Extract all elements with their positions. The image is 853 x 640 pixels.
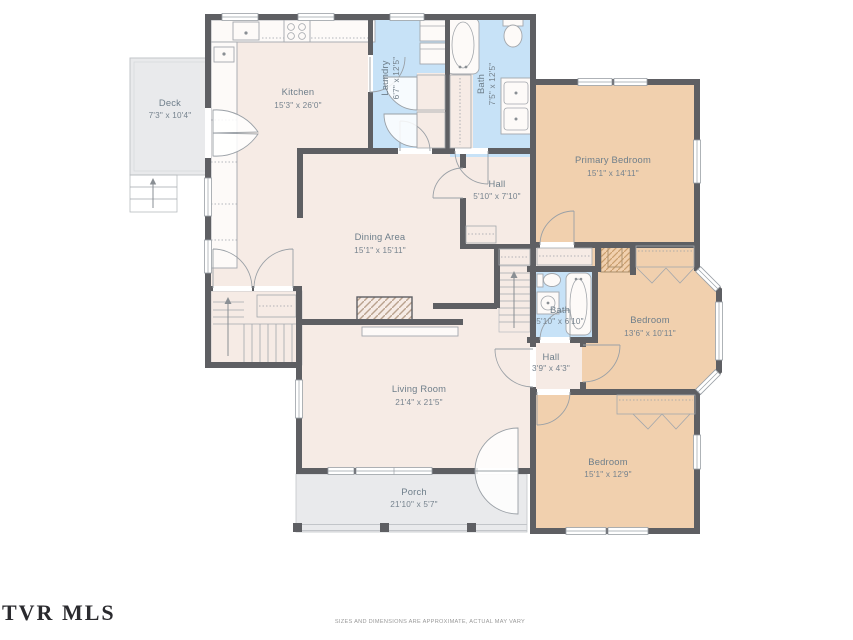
bedroom-middle-dims: 13'6" x 10'11" (624, 329, 676, 338)
disclaimer-text: SIZES AND DIMENSIONS ARE APPROXIMATE, AC… (335, 619, 525, 625)
bath-lower-name: Bath (550, 304, 570, 315)
hall-upper-dims: 5'10" x 7'10" (473, 192, 521, 201)
kitchen-sink-drain (244, 31, 247, 34)
window (390, 14, 424, 21)
deck-dims: 7'3" x 10'4" (149, 111, 192, 120)
bedroom-bottom-dims: 15'1" x 12'9" (584, 470, 632, 479)
bath-lower-dims: 5'10" x 6'10" (536, 317, 584, 326)
window (614, 79, 647, 86)
window (356, 468, 432, 475)
tub-faucet (465, 66, 468, 69)
porch-dims: 21'10" x 5'7" (390, 500, 438, 509)
fireplace-box (357, 297, 412, 322)
prep-sink-drain (222, 52, 225, 55)
toilet-tank (537, 274, 543, 287)
window (328, 468, 354, 475)
porch-post (467, 523, 476, 532)
living-dims: 21'4" x 21'5" (395, 398, 443, 407)
deck-stairs (130, 175, 177, 212)
bath-upper-name: Bath (475, 74, 486, 94)
stove (284, 20, 310, 42)
tub-faucet (459, 66, 462, 69)
primary-bedroom-dims: 15'1" x 14'11" (587, 169, 639, 178)
window (222, 14, 258, 21)
toilet-bowl (504, 25, 522, 47)
floor-plan-drawing: Deck 7'3" x 10'4" Kitchen 15'3" x 26'0" … (0, 0, 853, 640)
tub-faucet (575, 278, 578, 281)
bedroom-middle-name: Bedroom (630, 314, 669, 325)
mls-logo: TVR MLS (2, 600, 116, 625)
porch-post (380, 523, 389, 532)
hearth (362, 327, 458, 336)
kitchen-dims: 15'3" x 26'0" (274, 101, 322, 110)
tub-faucet (580, 278, 583, 281)
window (608, 528, 648, 535)
floor-plan-canvas: Deck 7'3" x 10'4" Kitchen 15'3" x 26'0" … (0, 0, 853, 640)
dining-name: Dining Area (355, 231, 406, 242)
hall-upper-name: Hall (489, 178, 506, 189)
primary-bedroom-name: Primary Bedroom (575, 154, 651, 165)
window (694, 435, 701, 469)
bath-upper-dims: 7'5" x 12'5" (488, 63, 497, 106)
kitchen-name: Kitchen (282, 86, 315, 97)
dryer (420, 43, 446, 64)
window (205, 240, 212, 273)
primary-closet-floor (536, 248, 592, 266)
deck-name: Deck (159, 97, 181, 108)
vanity-drain (515, 118, 518, 121)
dining-dims: 15'1" x 15'11" (354, 246, 406, 255)
double-vanity (501, 78, 531, 134)
window (296, 380, 303, 418)
porch-post (293, 523, 302, 532)
hall-lower-name: Hall (543, 351, 560, 362)
washer (420, 20, 446, 41)
porch-name: Porch (401, 486, 427, 497)
linen-column-floor (448, 73, 473, 150)
toilet-bowl (544, 274, 561, 287)
vanity-drain (515, 92, 518, 95)
laundry-name: Laundry (379, 60, 390, 95)
laundry-dims: 6'7" x 12'5" (392, 57, 401, 100)
kitchen-sink (233, 22, 259, 40)
window (566, 528, 606, 535)
footer: TVR MLS SIZES AND DIMENSIONS ARE APPROXI… (2, 600, 525, 625)
hall-lower-dims: 3'9" x 4'3" (532, 364, 570, 373)
bay-window (716, 302, 723, 360)
living-name: Living Room (392, 383, 446, 394)
deck-stair-up-arrow-icon (150, 178, 156, 185)
window (205, 178, 212, 216)
window (298, 14, 334, 21)
bedroom-bottom-name: Bedroom (588, 456, 627, 467)
window (694, 140, 701, 183)
window (578, 79, 612, 86)
